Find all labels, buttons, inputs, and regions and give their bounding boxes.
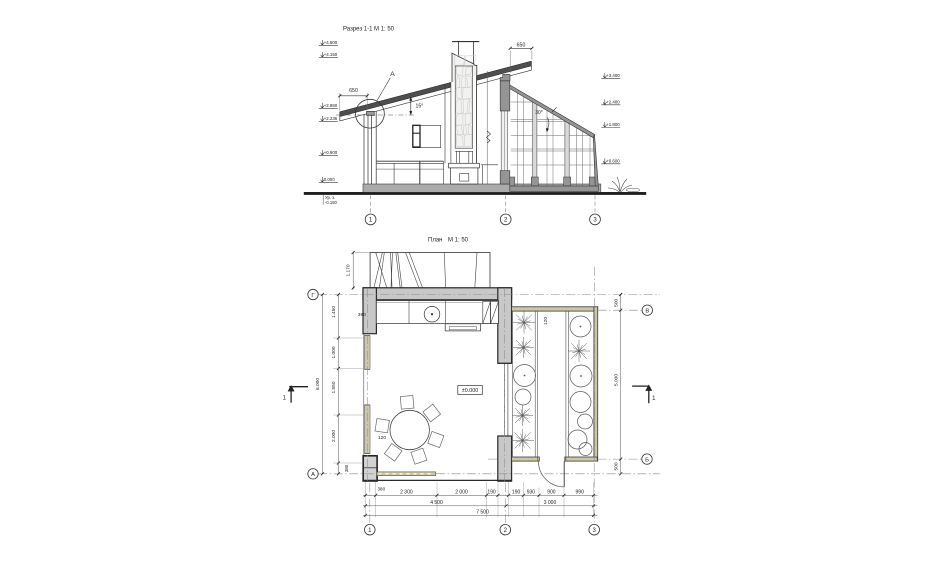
svg-text:М 1: 50: М 1: 50: [374, 27, 395, 33]
svg-text:6.000: 6.000: [315, 378, 321, 390]
svg-text:15°: 15°: [416, 104, 424, 110]
svg-text:5.000: 5.000: [614, 374, 620, 386]
svg-text:Разрез 1-1: Разрез 1-1: [343, 27, 373, 33]
svg-text:650: 650: [349, 88, 358, 94]
svg-text:0.000: 0.000: [324, 177, 336, 182]
svg-text:380: 380: [377, 487, 385, 492]
svg-text:500: 500: [614, 298, 620, 306]
svg-text:3 000: 3 000: [544, 500, 557, 506]
svg-text:500: 500: [614, 462, 620, 470]
svg-text:1.000: 1.000: [331, 346, 337, 358]
svg-text:380: 380: [358, 312, 366, 318]
svg-text:План: План: [428, 238, 442, 244]
svg-text:+2.236: +2.236: [324, 116, 338, 121]
svg-text:190: 190: [512, 490, 521, 496]
svg-text:+0.900: +0.900: [324, 150, 338, 155]
svg-text:В: В: [645, 309, 649, 315]
svg-text:Б: Б: [645, 457, 649, 463]
svg-text:930: 930: [527, 490, 536, 496]
svg-text:4 500: 4 500: [430, 500, 443, 506]
svg-text:1.450: 1.450: [331, 306, 337, 318]
svg-text:+2.400: +2.400: [606, 100, 620, 105]
svg-text:30°: 30°: [535, 110, 543, 116]
svg-text:-0.150: -0.150: [325, 200, 338, 205]
svg-text:М 1: 50: М 1: 50: [448, 238, 469, 244]
svg-text:1.550: 1.550: [331, 381, 337, 393]
svg-text:+4.500: +4.500: [324, 40, 338, 45]
svg-text:650: 650: [517, 42, 526, 48]
svg-text:А: А: [390, 71, 395, 78]
svg-text:+2.950: +2.950: [324, 103, 338, 108]
svg-text:380: 380: [344, 464, 349, 472]
svg-text:2.000: 2.000: [331, 430, 337, 442]
svg-text:+3.400: +3.400: [606, 73, 620, 78]
svg-text:+0.600: +0.600: [606, 159, 620, 164]
svg-text:2 000: 2 000: [455, 490, 468, 496]
svg-text:2 300: 2 300: [400, 490, 413, 496]
svg-text:900: 900: [547, 490, 556, 496]
svg-text:120: 120: [378, 435, 386, 441]
svg-text:190: 190: [487, 490, 496, 496]
svg-text:+1.800: +1.800: [606, 122, 620, 127]
svg-text:1.170: 1.170: [346, 264, 352, 276]
svg-text:±0.000: ±0.000: [462, 388, 478, 394]
svg-text:120: 120: [543, 317, 549, 325]
svg-text:990: 990: [576, 490, 585, 496]
svg-text:А: А: [311, 472, 315, 478]
svg-text:7 500: 7 500: [476, 510, 489, 516]
svg-text:+4.150: +4.150: [324, 52, 338, 57]
